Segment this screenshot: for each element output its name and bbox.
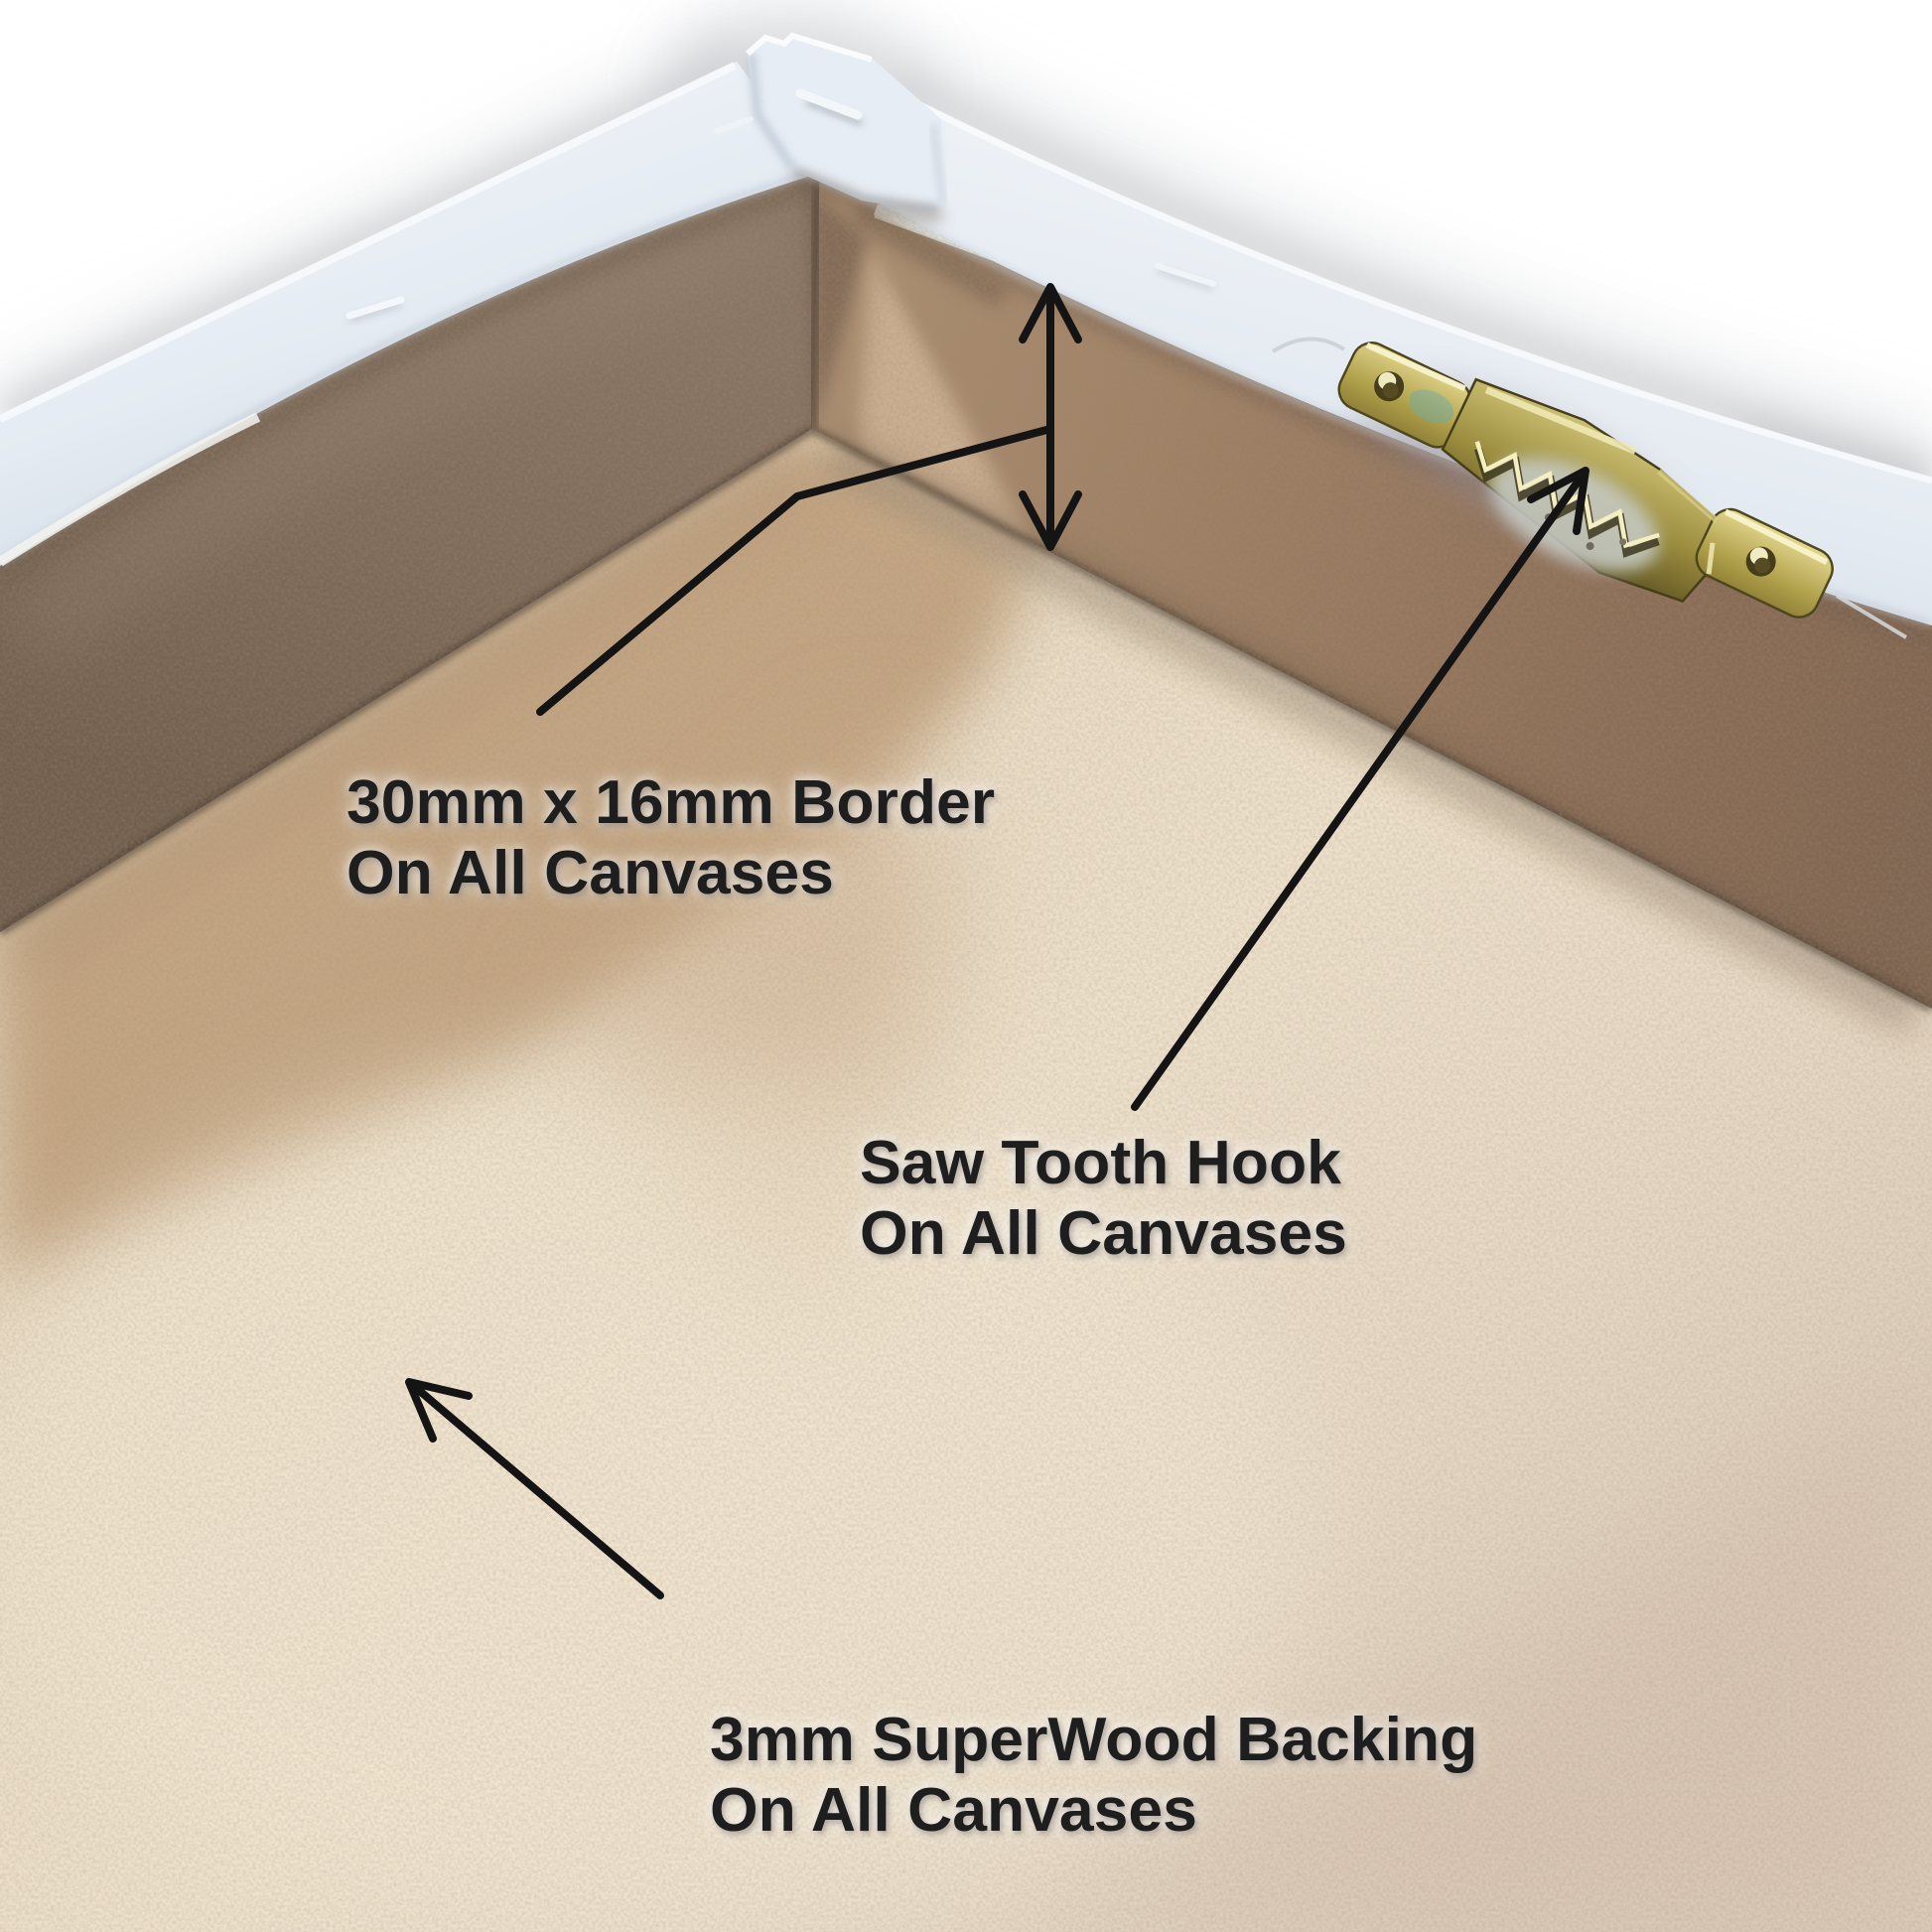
svg-text:On All Canvases: On All Canvases	[710, 1775, 1197, 1845]
svg-text:30mm x 16mm Border: 30mm x 16mm Border	[346, 767, 995, 837]
svg-text:3mm SuperWood Backing: 3mm SuperWood Backing	[710, 1705, 1477, 1774]
svg-text:On All Canvases: On All Canvases	[346, 838, 834, 907]
svg-text:On All Canvases: On All Canvases	[860, 1198, 1347, 1268]
svg-text:Saw Tooth Hook: Saw Tooth Hook	[860, 1128, 1341, 1197]
